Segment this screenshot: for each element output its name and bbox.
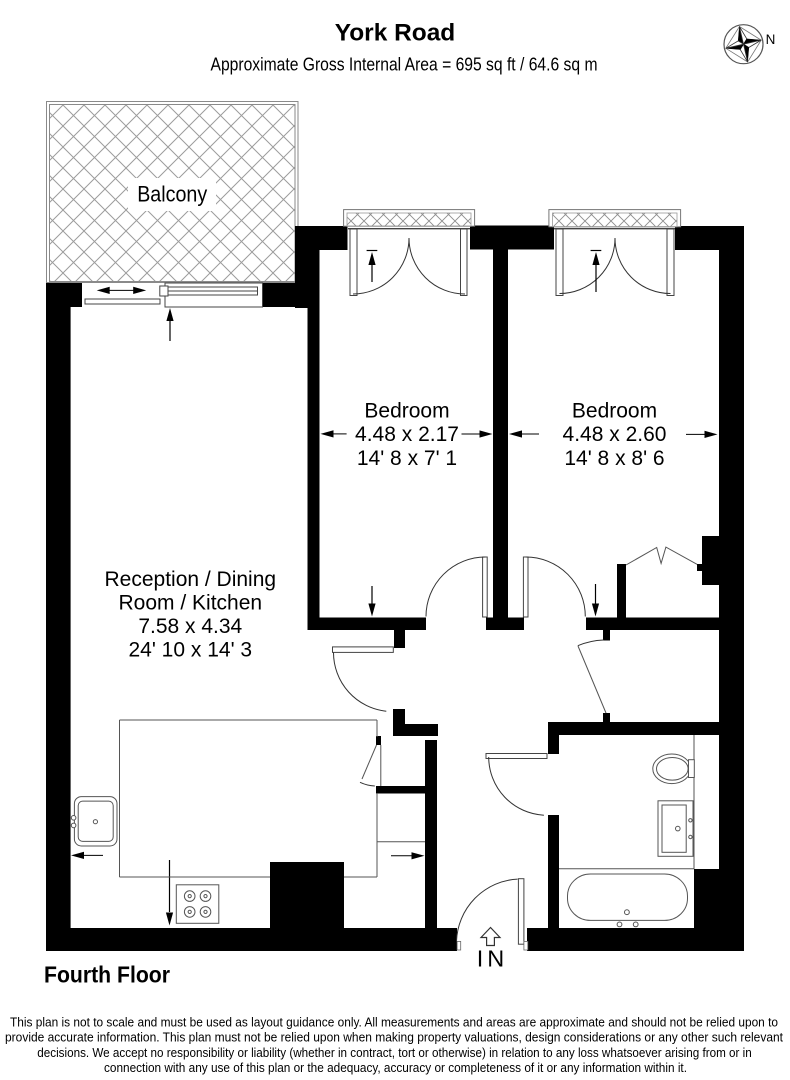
svg-text:Bedroom: Bedroom [364,400,449,423]
svg-text:decisions. We accept no respon: decisions. We accept no responsibility o… [37,1045,752,1060]
svg-text:14' 8 x 8' 6: 14' 8 x 8' 6 [564,447,664,470]
svg-text:24' 10 x 14' 3: 24' 10 x 14' 3 [128,639,252,662]
svg-text:Room / Kitchen: Room / Kitchen [119,592,263,615]
svg-text:Approximate Gross Internal Are: Approximate Gross Internal Area = 695 sq… [211,54,598,75]
svg-text:This plan is not to scale and: This plan is not to scale and must be us… [10,1014,778,1029]
svg-text:connection with any use of thi: connection with any use of this plan or … [104,1060,687,1075]
svg-text:York Road: York Road [335,19,456,46]
svg-text:IN: IN [477,945,509,971]
svg-text:N: N [766,32,776,47]
svg-text:Reception / Dining: Reception / Dining [104,568,276,591]
svg-text:14' 8 x 7' 1: 14' 8 x 7' 1 [357,447,457,470]
svg-text:Balcony: Balcony [137,182,207,207]
svg-text:4.48 x 2.60: 4.48 x 2.60 [563,423,667,446]
svg-text:provide accurate information.: provide accurate information. This plan … [5,1030,783,1045]
svg-text:7.58 x 4.34: 7.58 x 4.34 [138,615,242,638]
svg-text:Fourth Floor: Fourth Floor [44,962,170,988]
svg-text:Bedroom: Bedroom [572,400,657,423]
svg-text:4.48 x 2.17: 4.48 x 2.17 [355,423,459,446]
